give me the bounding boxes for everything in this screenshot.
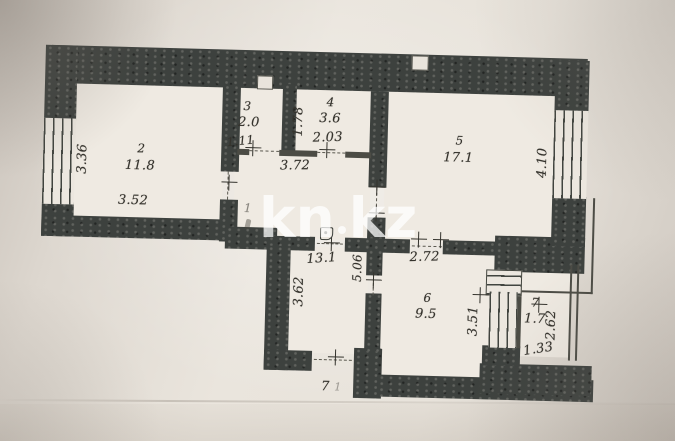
door-width-mark: 7 1: [321, 379, 342, 395]
room-1-area: 13.1: [306, 250, 337, 267]
room-6-area: 9.5: [415, 307, 437, 323]
room-2-number: 2: [137, 141, 145, 155]
room-2-area: 11.8: [125, 158, 156, 174]
wall-mid-3: [443, 240, 497, 255]
dim-room4-horizontal: 2.03: [312, 130, 343, 146]
room-4-number: 4: [326, 95, 334, 109]
paper-bottom-shading: [0, 404, 675, 441]
window-room5: [552, 110, 588, 199]
watermark-dot-icon: [338, 226, 346, 234]
room-3-number: 3: [243, 99, 251, 113]
wall-hall-right-lower: [364, 293, 382, 351]
wall-bottom-right-block: [479, 363, 592, 396]
room-7-number: 7: [531, 296, 539, 310]
tick-bottom-door: [328, 349, 344, 365]
dim-kitchen-horizontal: 2.72: [409, 249, 440, 265]
tick-room2-door: [221, 174, 237, 190]
wall-shaft-bottom: [482, 345, 521, 366]
dim-room2-vertical: 3.36: [74, 136, 89, 182]
dim-hall-vertical: 3.62: [291, 268, 306, 314]
dim-hall-vertical-2: 5.06: [350, 245, 365, 291]
kn-kz-watermark: knkz: [259, 190, 417, 246]
dim-room5-vertical: 4.10: [534, 140, 549, 186]
wall-hall-bottom: [264, 350, 313, 371]
window-loggia-partition: [488, 291, 517, 348]
door-width-mark-main: 7: [321, 379, 330, 394]
wall-room5-left-upper: [368, 91, 389, 187]
wall-room7-right-line2: [575, 265, 580, 361]
watermark-left: kn: [259, 186, 335, 250]
door-width-mark-sub: 1: [334, 380, 342, 393]
floor-plan-photo: 1 13.1 2 11.8 3 2.0 4 3.6 5 17.1 6 9.5 7…: [0, 0, 675, 441]
wall-room5-right-lower: [551, 196, 586, 247]
wall-corridor-top-3: [345, 152, 371, 159]
wall-left-upper: [44, 45, 78, 121]
room-6-number: 6: [423, 291, 431, 305]
wall-room5-right-upper: [554, 60, 589, 113]
window-room2: [42, 118, 76, 205]
wall-notch-room3: [257, 75, 273, 89]
watermark-right: kz: [349, 186, 418, 250]
dim-room3-width: 1.11: [226, 133, 255, 150]
room-3-area: 2.0: [238, 115, 260, 131]
room-5-area: 17.1: [443, 150, 474, 166]
dim-corridor-width: 3.72: [280, 158, 310, 173]
room-1-number: 1: [244, 201, 252, 215]
tick-hall-kitchen-door: [366, 272, 382, 288]
room-5-number: 5: [455, 134, 463, 148]
dim-kitchen-vertical: 3.51: [465, 298, 480, 344]
tick-kitchen-door-right: [433, 232, 449, 248]
wall-notch-top: [411, 55, 428, 70]
dim-room2-horizontal: 3.52: [118, 193, 149, 209]
wall-corridor-top-2: [279, 150, 317, 157]
room-7-area: 1.7: [524, 311, 546, 327]
dim-room4-vertical: 1.78: [290, 98, 305, 144]
room-4-area: 3.6: [319, 111, 341, 127]
wall-room2-bottom: [41, 215, 229, 241]
loggia-outline-vertical: [591, 198, 596, 294]
